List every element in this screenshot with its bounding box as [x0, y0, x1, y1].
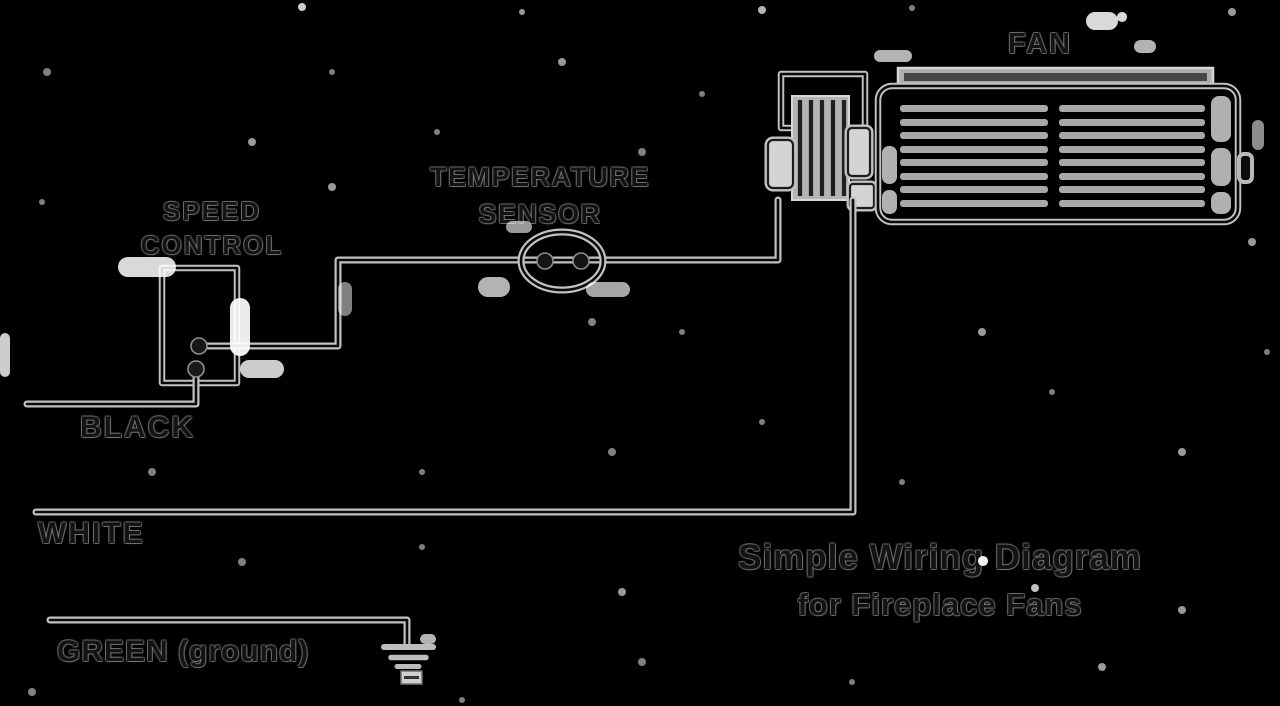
scan-artifact [338, 282, 352, 316]
black-wire-label: BLACK [80, 411, 195, 445]
sensor-terminal-right [573, 253, 589, 269]
fan-body [878, 68, 1252, 222]
speed-control-label: SPEED CONTROL [141, 194, 284, 262]
scan-artifact [240, 360, 284, 378]
speed-control-label-line1: SPEED [141, 194, 284, 228]
sensor-terminal-left [537, 253, 553, 269]
scan-artifact [420, 634, 436, 644]
fan-label: FAN [1008, 28, 1072, 61]
scan-artifact [230, 298, 250, 356]
scan-artifact [586, 282, 630, 297]
green-wire-label: GREEN (ground) [57, 635, 309, 669]
diagram-title-line1: Simple Wiring Diagram [738, 538, 1142, 578]
scan-artifact [118, 257, 176, 277]
ground-symbol [384, 647, 433, 684]
speed-control-terminal-top [191, 338, 207, 354]
white-wire-label: WHITE [38, 517, 145, 551]
scan-noise-speckles [0, 0, 4, 4]
motor-terminal-tab [768, 140, 793, 188]
scan-artifact [478, 277, 510, 297]
temperature-sensor-label-line2: SENSOR [430, 196, 650, 233]
fan-side-nub [1239, 154, 1252, 182]
temperature-sensor-label-line1: TEMPERATURE [430, 159, 650, 196]
scan-artifact [1086, 12, 1118, 30]
scan-artifact [506, 221, 532, 233]
fan-motor [768, 74, 874, 208]
temperature-sensor-label: TEMPERATURE SENSOR [430, 159, 650, 233]
diagram-title-line2: for Fireplace Fans [738, 587, 1142, 623]
motor-connector [848, 128, 870, 176]
scan-artifact [0, 333, 10, 377]
scan-artifact [1252, 120, 1264, 150]
scan-artifact [874, 50, 912, 62]
speed-control-terminal-bottom [188, 361, 204, 377]
diagram-title: Simple Wiring Diagram for Fireplace Fans [738, 538, 1142, 623]
wiring-diagram-canvas: FAN TEMPERATURE SENSOR SPEED CONTROL BLA… [0, 0, 1280, 706]
scan-artifact [1134, 40, 1156, 53]
